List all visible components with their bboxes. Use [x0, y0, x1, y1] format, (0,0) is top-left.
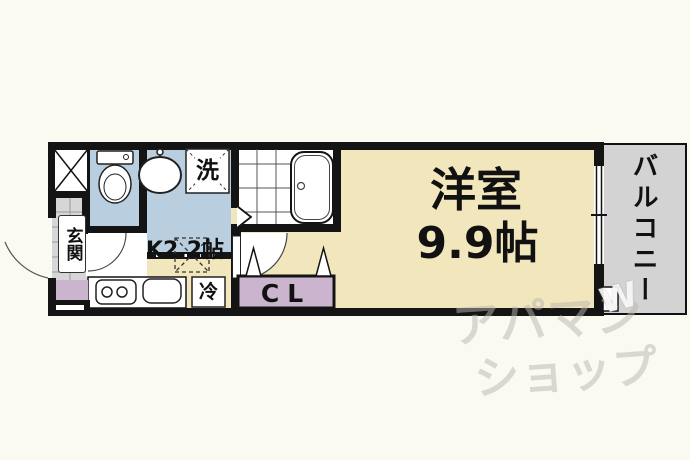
- bathtub-icon: [291, 152, 333, 223]
- floorplan-canvas: K2.2帖 洋室 9.9帖 CL 冷 洗 玄関 バルコニー アパマン ショップ …: [0, 0, 690, 460]
- wall-bath-bottom: [231, 224, 341, 232]
- closet-label: CL: [238, 281, 334, 306]
- living-room-name: 洋室: [398, 167, 554, 213]
- shoe-storage: [54, 280, 88, 300]
- entrance-label: 玄関: [58, 215, 86, 273]
- watermark-line2: ショップ: [472, 330, 660, 408]
- toilet-icon: [97, 151, 133, 203]
- refrigerator-label: 冷: [192, 283, 225, 302]
- kitchen-label: K2.2帖: [146, 240, 224, 262]
- shaft-box-icon: [54, 149, 88, 192]
- kitchen-sink-icon: [143, 279, 181, 303]
- wall-right-upper: [594, 142, 604, 166]
- entrance-door-icon: [5, 242, 48, 278]
- wall-bath-right: [333, 142, 341, 232]
- living-room-size: 9.9帖: [385, 222, 570, 266]
- stove-icon: [96, 280, 136, 304]
- wall-toilet-bottom: [82, 226, 147, 233]
- washing-machine-label: 洗: [186, 160, 229, 183]
- wall-top: [48, 142, 604, 150]
- wall-washroom-bath: [231, 142, 239, 208]
- entrance-step: [56, 305, 84, 310]
